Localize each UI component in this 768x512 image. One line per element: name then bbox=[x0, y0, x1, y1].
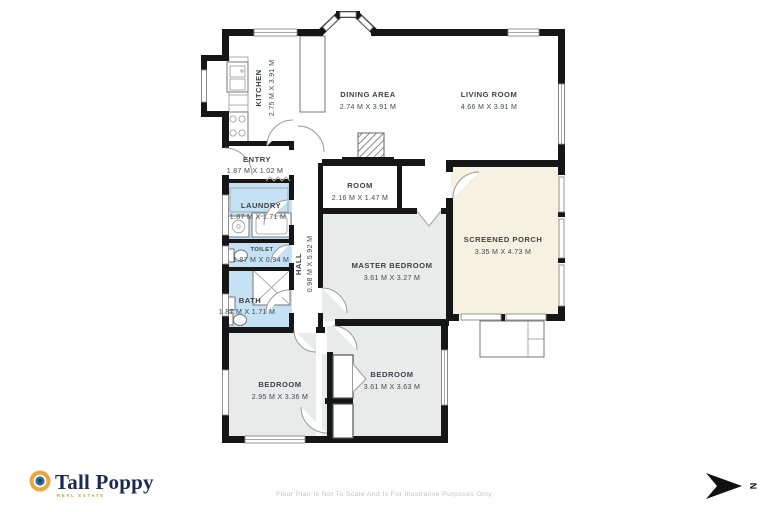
label-bath: BATH bbox=[239, 296, 262, 305]
dims-bedroom1: 2.95 M X 3.36 M bbox=[252, 393, 309, 401]
stove-icon bbox=[227, 112, 248, 142]
kitchen-side-window bbox=[202, 70, 207, 102]
tall-poppy-logo-icon bbox=[30, 471, 51, 492]
dims-laundry: 1.87 M X 1.71 M bbox=[230, 213, 287, 221]
label-entry: ENTRY bbox=[243, 155, 271, 164]
label-laundry: LAUNDRY bbox=[241, 201, 281, 210]
dims-kitchen: 2.75 M X 3.91 M bbox=[268, 60, 276, 117]
label-bedroom2: BEDROOM bbox=[370, 370, 413, 379]
label-hall: HALL bbox=[294, 253, 303, 275]
dims-entry: 1.87 M X 1.02 M bbox=[227, 167, 284, 175]
dims-bedroom2: 3.61 M X 3.63 M bbox=[364, 383, 421, 391]
label-living: LIVING ROOM bbox=[461, 90, 518, 99]
dims-hall: 0.98 M X 5.92 M bbox=[306, 236, 314, 293]
dims-dining: 2.74 M X 3.91 M bbox=[340, 103, 397, 111]
label-bedroom1: BEDROOM bbox=[258, 380, 301, 389]
label-dining: DINING AREA bbox=[340, 90, 395, 99]
porch-steps bbox=[480, 321, 544, 357]
label-toilet: TOILET bbox=[251, 247, 274, 253]
hall-door bbox=[298, 126, 324, 152]
label-room: ROOM bbox=[347, 181, 373, 190]
porch-screen-5 bbox=[506, 314, 546, 320]
north-arrow-icon bbox=[706, 473, 742, 499]
floor-plan: KITCHEN 2.75 M X 3.91 M DINING AREA 2.74… bbox=[0, 0, 768, 512]
laundry-window bbox=[223, 195, 229, 235]
label-kitchen: KITCHEN bbox=[254, 69, 263, 106]
tall-poppy-logo: Tall Poppy REAL ESTATE bbox=[30, 470, 154, 498]
fireplace-icon bbox=[358, 133, 384, 159]
bedroom1-side-window bbox=[223, 370, 229, 415]
north-compass: N bbox=[706, 473, 758, 499]
bay-top-window bbox=[340, 12, 356, 17]
dims-living: 4.66 M X 3.91 M bbox=[461, 103, 518, 111]
closet-bedroom2 bbox=[333, 355, 353, 398]
dims-master: 3.61 M X 3.27 M bbox=[364, 274, 421, 282]
label-master: MASTER BEDROOM bbox=[352, 261, 433, 270]
dims-toilet: 1.87 M X 0.94 M bbox=[233, 256, 290, 264]
porch-screen-1 bbox=[559, 177, 564, 212]
logo-subtext: REAL ESTATE bbox=[57, 493, 105, 498]
dims-room: 2.16 M X 1.47 M bbox=[332, 194, 389, 202]
logo-text: Tall Poppy bbox=[55, 470, 154, 494]
toilet-window bbox=[223, 246, 229, 264]
closet-bedroom1 bbox=[333, 404, 353, 438]
bath-toilet-bowl-icon bbox=[234, 315, 247, 326]
porch-screen-3 bbox=[559, 265, 564, 306]
kitchen-island bbox=[300, 36, 325, 112]
porch-screen-2 bbox=[559, 219, 564, 258]
porch-screen-4 bbox=[461, 314, 501, 320]
label-porch: SCREENED PORCH bbox=[464, 235, 543, 244]
dims-bath: 1.87 M X 1.71 M bbox=[219, 308, 276, 316]
north-label: N bbox=[748, 483, 758, 490]
disclaimer-text: Floor Plan Is Not To Scale And Is For Il… bbox=[276, 491, 492, 498]
floor-plan-page: KITCHEN 2.75 M X 3.91 M DINING AREA 2.74… bbox=[0, 0, 768, 512]
dims-porch: 3.35 M X 4.73 M bbox=[475, 248, 532, 256]
